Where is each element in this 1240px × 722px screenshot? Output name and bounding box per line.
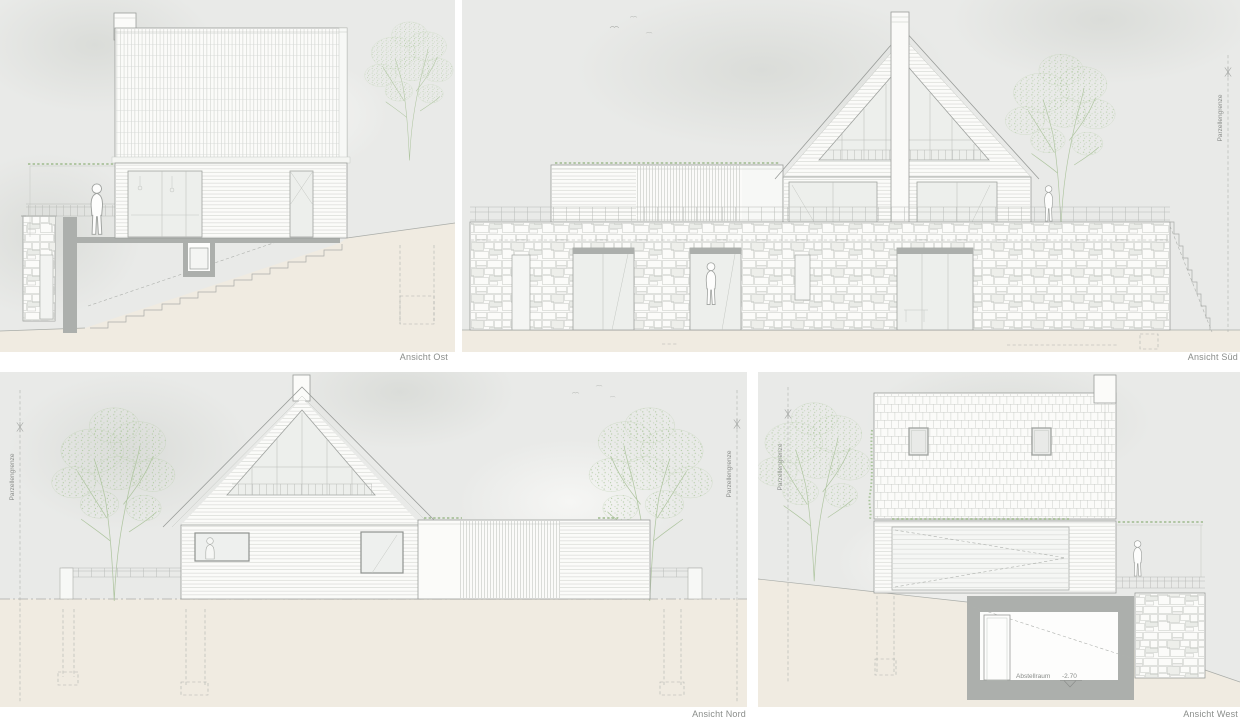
cellar-door (40, 255, 53, 319)
terrace-railing (1116, 577, 1205, 588)
terrain (462, 330, 1240, 352)
panel-ansicht-nord: Parzellengrenze Parzellengrenze (0, 372, 747, 707)
boundary-marker-icon (734, 419, 740, 429)
bird-icon (610, 26, 619, 28)
elevation-drawing-nord: Parzellengrenze Parzellengrenze (0, 372, 747, 707)
boundary-label: Parzellengrenze (726, 450, 733, 497)
drawing-sheet: Parzellengrenze (0, 0, 1240, 722)
view-label-ost: Ansicht Ost (298, 352, 448, 362)
basement-door (984, 615, 1010, 680)
fence-right (650, 568, 702, 599)
bird-icon (630, 16, 637, 17)
bird-icon (596, 385, 602, 386)
level-value: -2.70 (1062, 673, 1077, 680)
bird-icon (646, 32, 652, 33)
chimney (1094, 375, 1116, 403)
lightwell-section (183, 243, 215, 277)
house-north-elevation (163, 375, 439, 599)
gable-house (775, 12, 1039, 222)
flat-roof-wing (418, 518, 650, 599)
person-figure (91, 184, 102, 234)
fence-left (60, 568, 181, 599)
boundary-label: Parzellengrenze (1217, 94, 1224, 141)
panel-ansicht-west: Parzellengrenze (758, 372, 1240, 707)
slit-window (795, 255, 810, 300)
window-right (361, 532, 403, 573)
chimney (891, 12, 909, 222)
plot-boundary: Parzellengrenze (1217, 55, 1231, 332)
basement-section: Abstellraum -2.70 (967, 596, 1134, 700)
window-left (195, 533, 249, 561)
stone-wall (21, 216, 57, 321)
upper-window-1 (909, 428, 928, 455)
elevation-drawing-ost (0, 0, 455, 352)
tree (365, 22, 453, 161)
view-label-sued: Ansicht Süd (1088, 352, 1238, 362)
climbing-plant (869, 430, 872, 519)
bird-icon (572, 392, 579, 393)
elevation-drawing-sued: Parzellengrenze (462, 0, 1240, 352)
boundary-marker-icon (1225, 67, 1231, 77)
door (290, 171, 313, 237)
house-west-elevation (869, 375, 1116, 593)
boundary-marker-icon (785, 409, 791, 419)
bird-icon (610, 396, 615, 397)
base-door (512, 255, 530, 330)
terrain (0, 599, 747, 707)
floor-band (112, 157, 350, 163)
person-figure (1134, 541, 1142, 576)
house-east-elevation (112, 13, 350, 238)
base-glazing-3 (897, 248, 973, 330)
view-label-nord: Ansicht Nord (596, 709, 746, 719)
stone-base (470, 222, 1170, 330)
view-label-west: Ansicht West (1088, 709, 1238, 719)
garage-door (892, 527, 1069, 590)
terrace-railing (470, 207, 1170, 221)
window-large (128, 171, 202, 237)
boundary-label: Parzellengrenze (9, 453, 16, 500)
base-glazing-2 (690, 248, 741, 330)
wall-cut (63, 217, 77, 333)
panel-ansicht-ost (0, 0, 455, 352)
pergola (1116, 522, 1203, 577)
person-figure (206, 538, 214, 559)
stone-wall (1135, 593, 1205, 678)
elevation-drawing-west: Parzellengrenze (758, 372, 1240, 707)
panel-ansicht-sued: Parzellengrenze (462, 0, 1240, 352)
side-stairs (1170, 222, 1210, 330)
upper-window-2 (1032, 428, 1051, 455)
boundary-marker-icon (17, 422, 23, 432)
base-glazing-1 (573, 248, 634, 330)
basement-room-label: Abstellraum (1016, 673, 1050, 680)
tree (758, 403, 870, 582)
